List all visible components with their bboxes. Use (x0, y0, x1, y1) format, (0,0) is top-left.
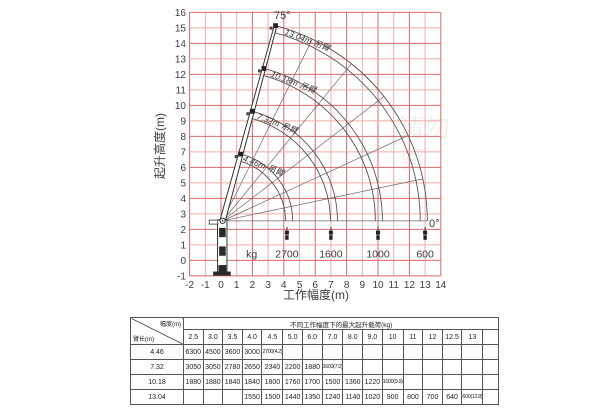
table-row: 7.3230503050278026502340220018801600(7.0… (131, 360, 499, 375)
boom-section-marker (262, 66, 267, 71)
table-corner-cell: 幅度(m)臂长(m) (131, 318, 184, 345)
radius-header-cell: 3.5 (223, 330, 243, 345)
load-value-cell (322, 345, 343, 360)
boom-length-cell: 13.04 (131, 390, 184, 405)
load-value-cell: 1800 (262, 375, 283, 390)
load-value-cell: 1700 (302, 375, 322, 390)
y-tick-label: 14 (175, 39, 187, 50)
x-tick-label: 0 (218, 280, 224, 291)
boom-tip-arc-inner (262, 75, 375, 221)
load-value-cell (184, 390, 204, 405)
x-tick-label: -1 (201, 280, 210, 291)
y-tick-label: 5 (180, 178, 186, 189)
radius-header-cell: 2.5 (184, 330, 204, 345)
radius-header-cell: 12 (423, 330, 443, 345)
tip-load-label: 1000 (366, 248, 390, 260)
x-tick-label: -2 (185, 280, 194, 291)
crane-base-plate (213, 272, 231, 276)
boom-length-label: 7.32m 吊臂 (256, 111, 301, 136)
y-tick-label: 11 (176, 85, 187, 96)
boom-length-label: 10.18m 吊臂 (269, 69, 319, 96)
y-tick-label: -1 (177, 271, 186, 282)
load-value-cell: 3050 (203, 360, 223, 375)
y-axis-title: 起升高度(m) (152, 113, 167, 179)
radius-header-cell: 13 (462, 330, 483, 345)
load-value-cell (462, 375, 483, 390)
load-value-cell (302, 345, 322, 360)
load-value-cell: 6300 (184, 345, 204, 360)
load-value-cell (223, 390, 243, 405)
y-tick-label: 16 (175, 8, 187, 19)
y-tick-label: 7 (180, 147, 186, 158)
min-angle-label: 0° (429, 218, 440, 230)
table-row: 4.4663004500360030002700(4.2) (131, 345, 499, 360)
x-tick-label: 13 (420, 280, 432, 291)
x-tick-label: 3 (265, 280, 271, 291)
load-value-cell: 1240 (322, 390, 343, 405)
boom-section-marker-small (235, 155, 238, 158)
load-value-cell (442, 375, 462, 390)
boom-section-marker-small (270, 27, 273, 30)
load-value-cell (343, 345, 363, 360)
radius-header-cell: 8.0 (343, 330, 363, 345)
y-tick-label: 9 (180, 116, 186, 127)
load-value-cell (483, 360, 499, 375)
radius-header-cell: 7.0 (322, 330, 343, 345)
y-tick-label: 1 (180, 240, 186, 251)
load-value-cell (363, 360, 383, 375)
load-value-cell (423, 360, 443, 375)
hook-block (423, 231, 427, 235)
load-value-cell (403, 345, 423, 360)
load-value-cell: 3050 (184, 360, 204, 375)
load-value-cell (363, 345, 383, 360)
load-value-cell: 640 (442, 390, 462, 405)
boom-length-label: 13.04m 吊臂 (283, 27, 333, 54)
radius-header-cell: 10 (382, 330, 403, 345)
x-tick-label: 10 (372, 280, 384, 291)
load-value-cell (343, 360, 363, 375)
corner-radius-label: 幅度(m) (160, 319, 181, 328)
load-value-cell (382, 345, 403, 360)
corner-boom-label: 臂长(m) (133, 334, 154, 343)
load-value-cell: 1140 (343, 390, 363, 405)
load-value-cell (462, 345, 483, 360)
load-value-cell: 1880 (203, 375, 223, 390)
x-tick-label: 12 (404, 280, 416, 291)
load-value-cell (442, 345, 462, 360)
boom-section-marker (250, 109, 255, 114)
load-value-cell: 1020 (363, 390, 383, 405)
load-value-cell: 1350 (302, 390, 322, 405)
y-tick-label: 6 (180, 163, 186, 174)
load-value-cell: 2650 (242, 360, 262, 375)
y-tick-label: 0 (180, 256, 186, 267)
load-value-cell: 3600 (223, 345, 243, 360)
crane-base-drawing (209, 218, 231, 275)
table-title-cell: 不同工作幅度下的最大起升载荷(kg) (184, 318, 499, 330)
load-value-cell: 1500 (262, 390, 283, 405)
x-tick-label: 14 (435, 280, 447, 291)
radius-header-cell (483, 330, 499, 345)
load-value-cell: 800 (403, 390, 423, 405)
x-tick-label: 2 (250, 280, 256, 291)
load-value-cell: 1600(7.0) (322, 360, 343, 375)
load-value-cell (462, 360, 483, 375)
load-value-cell: 1550 (242, 390, 262, 405)
load-value-cell: 2780 (223, 360, 243, 375)
radius-header-cell: 3.0 (203, 330, 223, 345)
table-row: 13.0415501500144013501240114010209008007… (131, 390, 499, 405)
boom-length-cell: 10.18 (131, 375, 184, 390)
load-value-cell: 600(12.8) (462, 390, 483, 405)
boom-section-marker-small (258, 69, 261, 72)
spoke-line (223, 39, 313, 221)
load-value-cell: 2340 (262, 360, 283, 375)
x-axis-title: 工作幅度(m) (283, 287, 349, 302)
radius-header-cell: 9.0 (363, 330, 383, 345)
crane-column-block (219, 228, 226, 237)
load-labels: kg270016001000600 (246, 248, 434, 260)
hook-icon (376, 235, 379, 240)
x-tick-label: 1 (234, 280, 240, 291)
boom-length-cell: 7.32 (131, 360, 184, 375)
load-value-cell (483, 375, 499, 390)
load-table-body: 幅度(m)臂长(m)不同工作幅度下的最大起升载荷(kg)2.53.03.54.0… (131, 318, 499, 405)
load-value-cell: 700 (423, 390, 443, 405)
hook-icon (423, 235, 426, 240)
load-unit-label: kg (246, 248, 257, 260)
load-value-cell: 1880 (302, 360, 322, 375)
load-value-cell (382, 360, 403, 375)
load-value-cell: 1760 (283, 375, 303, 390)
load-value-cell (423, 375, 443, 390)
radius-header-cell: 4.0 (242, 330, 262, 345)
load-value-cell: 1840 (242, 375, 262, 390)
y-tick-label: 8 (180, 132, 186, 143)
load-value-cell (403, 375, 423, 390)
load-value-cell: 2700(4.2) (262, 345, 283, 360)
radius-header-cell: 4.5 (262, 330, 283, 345)
hook-icon (285, 235, 288, 240)
y-tick-label: 4 (180, 194, 186, 205)
tip-load-label: 2700 (275, 248, 299, 260)
crane-load-chart-page: { "chart_data": { "type": "line", "title… (0, 0, 616, 408)
hook-block (376, 231, 380, 235)
spoke-lines (223, 26, 428, 221)
boom-section-marker-small (246, 112, 249, 115)
load-value-cell (483, 345, 499, 360)
crane-column-block (218, 265, 226, 272)
x-tick-label: 11 (389, 280, 400, 291)
load-value-cell: 900 (382, 390, 403, 405)
tip-load-label: 1600 (319, 248, 343, 260)
hook-block (285, 231, 289, 235)
boom-length-cell: 4.46 (131, 345, 184, 360)
crane-counter-frame (209, 220, 218, 224)
load-value-cell (483, 390, 499, 405)
load-table: 幅度(m)臂长(m)不同工作幅度下的最大起升载荷(kg)2.53.03.54.0… (130, 317, 499, 405)
y-tick-label: 10 (175, 101, 187, 112)
hook-icon (329, 235, 332, 240)
load-value-cell: 1880 (184, 375, 204, 390)
crane-range-chart: -2-1012345678910111213141615141312111098… (0, 0, 616, 314)
load-value-cell: 1440 (283, 390, 303, 405)
load-value-cell: 1220 (363, 375, 383, 390)
load-value-cell (442, 360, 462, 375)
load-value-cell (203, 390, 223, 405)
radius-header-cell: 5.0 (283, 330, 303, 345)
radius-header-cell: 12.5 (442, 330, 462, 345)
load-value-cell: 1500 (322, 375, 343, 390)
load-value-cell: 1360 (343, 375, 363, 390)
load-value-cell: 4500 (203, 345, 223, 360)
booms (220, 23, 427, 240)
load-value-cell: 2200 (283, 360, 303, 375)
load-value-cell (283, 345, 303, 360)
y-tick-label: 3 (180, 209, 186, 220)
y-tick-label: 13 (175, 54, 187, 65)
boom-section-marker (273, 23, 278, 28)
y-tick-label: 2 (180, 225, 186, 236)
tip-load-label: 600 (416, 248, 434, 260)
load-value-cell: 1000(9.9) (382, 375, 403, 390)
hook-block (329, 231, 333, 235)
boom-tip-arc-outer (276, 26, 428, 221)
crane-column-block (219, 246, 226, 255)
y-tick-label: 12 (175, 70, 187, 81)
max-angle-label: 75° (274, 10, 291, 22)
load-value-cell: 3000 (242, 345, 262, 360)
load-value-cell (403, 360, 423, 375)
tick-labels: -2-1012345678910111213141615141312111098… (175, 8, 447, 291)
radius-header-cell: 11 (403, 330, 423, 345)
load-value-cell: 1840 (223, 375, 243, 390)
y-tick-label: 15 (175, 23, 187, 34)
load-value-cell (423, 345, 443, 360)
boom-pivot-pin (222, 220, 224, 222)
table-row: 10.1818801880184018401800176017001500136… (131, 375, 499, 390)
x-tick-label: 9 (360, 280, 366, 291)
boom-section-marker (238, 152, 243, 157)
radius-header-cell: 6.0 (302, 330, 322, 345)
